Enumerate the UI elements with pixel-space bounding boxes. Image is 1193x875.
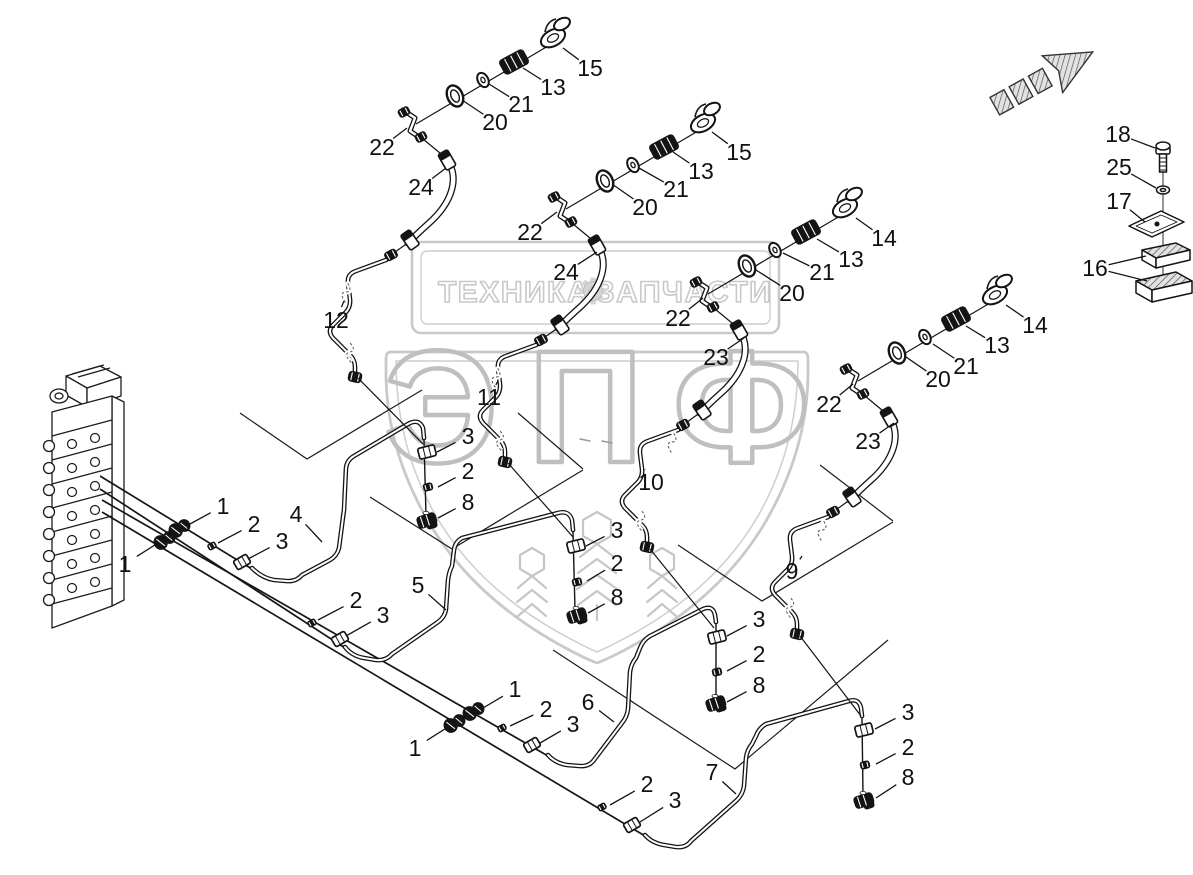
part-label: 21 <box>663 176 689 202</box>
leader-line <box>578 252 597 264</box>
plate-part-17 <box>1129 211 1184 237</box>
leader-line <box>727 661 747 671</box>
part-label: 3 <box>462 423 475 449</box>
flare-nut <box>854 723 873 738</box>
part-label: 3 <box>611 517 624 543</box>
bolt-part-18 <box>1156 142 1170 172</box>
leader-line <box>427 727 448 740</box>
part-label: 13 <box>540 74 566 100</box>
part-label: 8 <box>753 672 766 698</box>
part-label: 3 <box>276 528 289 554</box>
leader-line <box>876 785 896 798</box>
leader-line <box>875 718 896 729</box>
leader-line <box>783 253 809 266</box>
part-label: 20 <box>482 109 508 135</box>
fitting-nut <box>711 667 723 677</box>
fitting-nut <box>648 133 681 161</box>
leader-line <box>1130 210 1145 222</box>
fitting-nut <box>790 218 823 246</box>
inline-fittings <box>151 516 641 833</box>
part-label: 3 <box>377 602 390 628</box>
part-label: 2 <box>462 458 475 484</box>
part-label: 20 <box>632 194 658 220</box>
dust-cap <box>830 185 864 221</box>
leader-line <box>966 326 985 338</box>
part-label: 1 <box>409 735 422 761</box>
leader-line <box>523 68 541 80</box>
wheat-ears-emblem <box>517 512 677 620</box>
leader-line <box>393 128 407 139</box>
sealing-washer <box>917 328 933 346</box>
part-label: 1 <box>119 551 132 577</box>
leader-line <box>933 344 954 358</box>
part-label: 2 <box>350 587 363 613</box>
part-label: 1 <box>509 676 522 702</box>
part-label: 3 <box>753 606 766 632</box>
fitting-nut <box>596 802 607 813</box>
part-label: 13 <box>984 332 1010 358</box>
leader-line <box>727 626 747 636</box>
part-label: 2 <box>641 771 654 797</box>
elbow-fitting <box>565 606 588 625</box>
leader-line <box>673 152 689 163</box>
hydraulic-lines-parts-diagram: ТЕХНИКА ЗАПЧАСТИ ЭПФ <box>0 0 1193 875</box>
part-label: 21 <box>809 259 835 285</box>
leader-line <box>248 548 270 559</box>
leader-line <box>462 100 483 114</box>
flare-nut <box>566 539 585 554</box>
elbow-fitting <box>852 791 875 810</box>
part-label: 8 <box>611 584 624 610</box>
dust-cap <box>688 100 722 136</box>
leader-line <box>1006 305 1023 317</box>
leader-line <box>483 696 503 708</box>
part-label: 1 <box>217 493 230 519</box>
part-label: 8 <box>462 489 475 515</box>
part-label: 6 <box>582 689 595 715</box>
leader-line <box>541 212 557 224</box>
elbow-fitting <box>704 694 727 713</box>
leader-line <box>727 692 747 702</box>
part-label: 2 <box>540 696 553 722</box>
sealing-washer <box>475 71 491 89</box>
leader-line <box>438 509 456 518</box>
part-label: 22 <box>816 391 842 417</box>
part-label: 15 <box>726 139 752 165</box>
part-label: 7 <box>706 759 719 785</box>
part-label: 12 <box>323 307 349 333</box>
part-label: 3 <box>902 699 915 725</box>
clamp-part-16 <box>1136 243 1192 302</box>
washer-part-25 <box>1157 186 1170 194</box>
part-label: 23 <box>855 428 881 454</box>
leader-line <box>489 84 509 97</box>
leader-line <box>800 556 802 559</box>
fitting-nut <box>306 618 317 629</box>
part-label: 20 <box>779 280 805 306</box>
fitting-nut <box>859 760 871 770</box>
leader-line <box>610 791 635 805</box>
leader-line <box>612 184 634 199</box>
flare-nut <box>623 817 641 833</box>
part-label: 22 <box>517 219 543 245</box>
clamp-hardware-set <box>1129 142 1192 302</box>
part-label: 13 <box>838 246 864 272</box>
part-label: 3 <box>669 787 682 813</box>
leader-line <box>428 594 446 610</box>
part-label: 9 <box>786 558 799 584</box>
watermark-brand-letters: ЭПФ <box>384 317 839 496</box>
direction-arrow-icon <box>985 34 1103 125</box>
part-label: 22 <box>369 134 395 160</box>
leader-line <box>510 715 533 726</box>
part-label: 13 <box>688 158 714 184</box>
part-label: 17 <box>1106 188 1132 214</box>
leader-line <box>640 807 663 822</box>
part-label: 22 <box>665 305 691 331</box>
sealing-washer <box>625 156 641 174</box>
leader-line <box>346 622 371 636</box>
fitting-nut <box>940 305 973 333</box>
part-label: 25 <box>1106 154 1132 180</box>
part-label: 10 <box>638 469 664 495</box>
leader-line <box>722 781 736 794</box>
leader-line <box>1109 256 1146 265</box>
part-label: 20 <box>925 366 951 392</box>
part-label: 4 <box>290 501 303 527</box>
part-label: 23 <box>703 344 729 370</box>
leader-line <box>1131 174 1156 188</box>
leader-line <box>876 754 896 764</box>
part-label: 8 <box>902 764 915 790</box>
leader-line <box>318 607 344 620</box>
part-label: 11 <box>477 384 501 410</box>
part-label: 14 <box>871 225 897 251</box>
part-label: 3 <box>567 711 580 737</box>
part-label: 15 <box>577 55 603 81</box>
part-label: 24 <box>553 259 579 285</box>
leader-line <box>432 168 446 179</box>
part-label: 2 <box>902 734 915 760</box>
part-label: 2 <box>611 550 624 576</box>
part-label: 5 <box>412 572 425 598</box>
leader-line <box>639 168 664 182</box>
part-label: 14 <box>1022 312 1048 338</box>
part-label: 24 <box>408 174 434 200</box>
leader-line <box>218 531 242 543</box>
leader-line <box>306 524 322 542</box>
parts-diagram-page: ТЕХНИКА ЗАПЧАСТИ ЭПФ <box>0 0 1193 875</box>
leader-line <box>906 357 926 371</box>
leader-line <box>1131 139 1155 148</box>
dust-cap <box>538 15 572 51</box>
part-label: 21 <box>508 91 534 117</box>
hose-fitting <box>438 149 457 170</box>
leader-line <box>1109 271 1147 281</box>
fitting-nut <box>347 370 363 384</box>
part-label: 2 <box>248 511 261 537</box>
fitting-nut <box>498 48 531 76</box>
part-label: 21 <box>953 353 979 379</box>
part-label: 2 <box>753 641 766 667</box>
flare-nut <box>707 630 726 645</box>
leader-line <box>190 513 211 524</box>
part-label: 16 <box>1082 255 1108 281</box>
part-label: 18 <box>1105 121 1131 147</box>
leader-line <box>856 218 873 230</box>
leader-line <box>817 239 839 252</box>
hose-fitting <box>880 406 899 427</box>
leader-line <box>540 731 561 743</box>
dust-cap <box>980 272 1014 308</box>
leader-line <box>599 711 614 722</box>
leader-line <box>137 543 158 556</box>
